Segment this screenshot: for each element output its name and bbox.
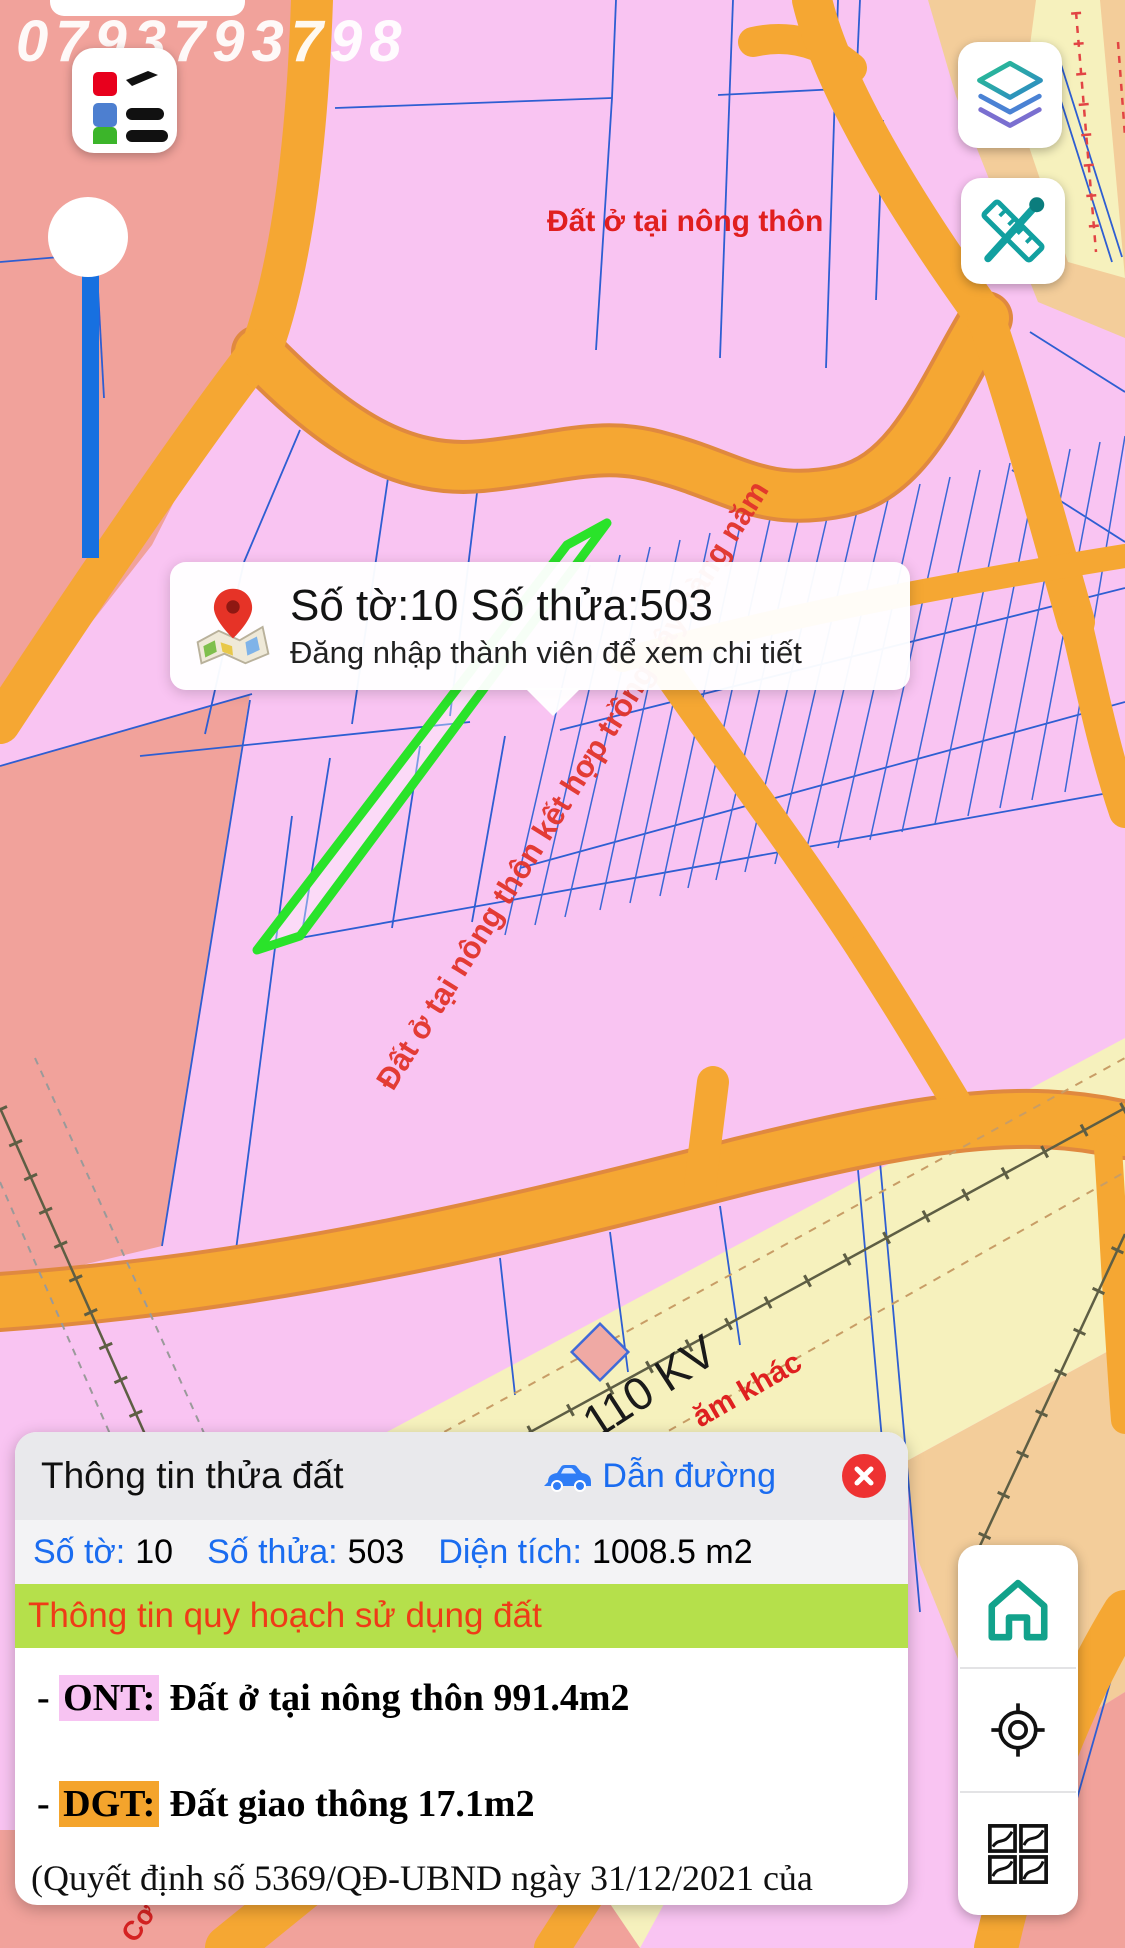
field-label: Số thửa:	[207, 1533, 338, 1572]
panel-title: Thông tin thửa đất	[41, 1455, 343, 1497]
directions-button[interactable]: Dẫn đường	[544, 1457, 776, 1496]
decision-note-line1: (Quyết định số 5369/QĐ-UBND ngày 31/12/2…	[31, 1852, 908, 1904]
tooltip-title: Số tờ:10 Số thửa:503	[290, 581, 802, 632]
home-icon	[977, 1565, 1059, 1647]
directions-label: Dẫn đường	[602, 1457, 776, 1496]
close-button[interactable]	[842, 1454, 886, 1498]
zoning-bullet: -	[37, 1677, 59, 1719]
map-control-stack	[958, 1545, 1078, 1915]
zone-label-top: Đất ở tại nông thôn	[547, 205, 823, 238]
zoning-section-title: Thông tin quy hoạch sử dụng đất	[28, 1596, 542, 1636]
layers-icon	[971, 56, 1049, 134]
panel-header: Thông tin thửa đất Dẫn đường	[15, 1432, 908, 1520]
field-label: Diện tích:	[438, 1533, 582, 1572]
zoning-code-ont: ONT:	[59, 1675, 159, 1721]
parcel-tooltip[interactable]: Số tờ:10 Số thửa:503 Đăng nhập thành viê…	[170, 562, 910, 690]
parcel-info-panel: Thông tin thửa đất Dẫn đường Số tờ: 10	[15, 1432, 908, 1905]
decision-note-line2: UBND tỉnh Đồng Nai về việc phê duyệt quy…	[31, 1904, 908, 1905]
locate-button[interactable]	[958, 1669, 1078, 1791]
zoning-code-dgt: DGT:	[59, 1781, 159, 1827]
map-pin-icon	[190, 583, 276, 669]
legend-icon	[82, 58, 168, 144]
decision-note: (Quyết định số 5369/QĐ-UBND ngày 31/12/2…	[15, 1852, 908, 1905]
car-icon	[544, 1459, 592, 1493]
land-map-app: Đất ở tại nông thôn Đất ở tại nông thôn …	[0, 0, 1125, 1948]
tooltip-subtitle: Đăng nhập thành viên để xem chi tiết	[290, 635, 802, 671]
parcel-fields-row: Số tờ: 10 Số thửa: 503 Diện tích: 1008.5…	[15, 1520, 908, 1584]
field-value: 1008.5 m2	[592, 1533, 753, 1572]
zoning-bullet: -	[37, 1783, 59, 1825]
home-button[interactable]	[958, 1545, 1078, 1667]
measure-button[interactable]	[961, 178, 1065, 284]
legend-button[interactable]	[72, 48, 177, 153]
field-label: Số tờ:	[33, 1533, 125, 1572]
zoning-text: Đất ở tại nông thôn 991.4m2	[169, 1677, 629, 1719]
layers-button[interactable]	[958, 42, 1062, 148]
zoning-row-dgt: - DGT:Đất giao thông 17.1m2	[15, 1782, 908, 1826]
field-value: 10	[135, 1533, 173, 1572]
map-sheets-icon	[981, 1817, 1055, 1891]
zoning-section-header: Thông tin quy hoạch sử dụng đất	[15, 1584, 908, 1648]
zoning-text: Đất giao thông 17.1m2	[169, 1783, 534, 1825]
field-value: 503	[348, 1533, 405, 1572]
close-icon	[853, 1465, 875, 1487]
measure-icon	[973, 191, 1053, 271]
zoning-row-ont: - ONT:Đất ở tại nông thôn 991.4m2	[15, 1676, 908, 1720]
locate-icon	[981, 1693, 1055, 1767]
map-sheets-button[interactable]	[958, 1793, 1078, 1915]
